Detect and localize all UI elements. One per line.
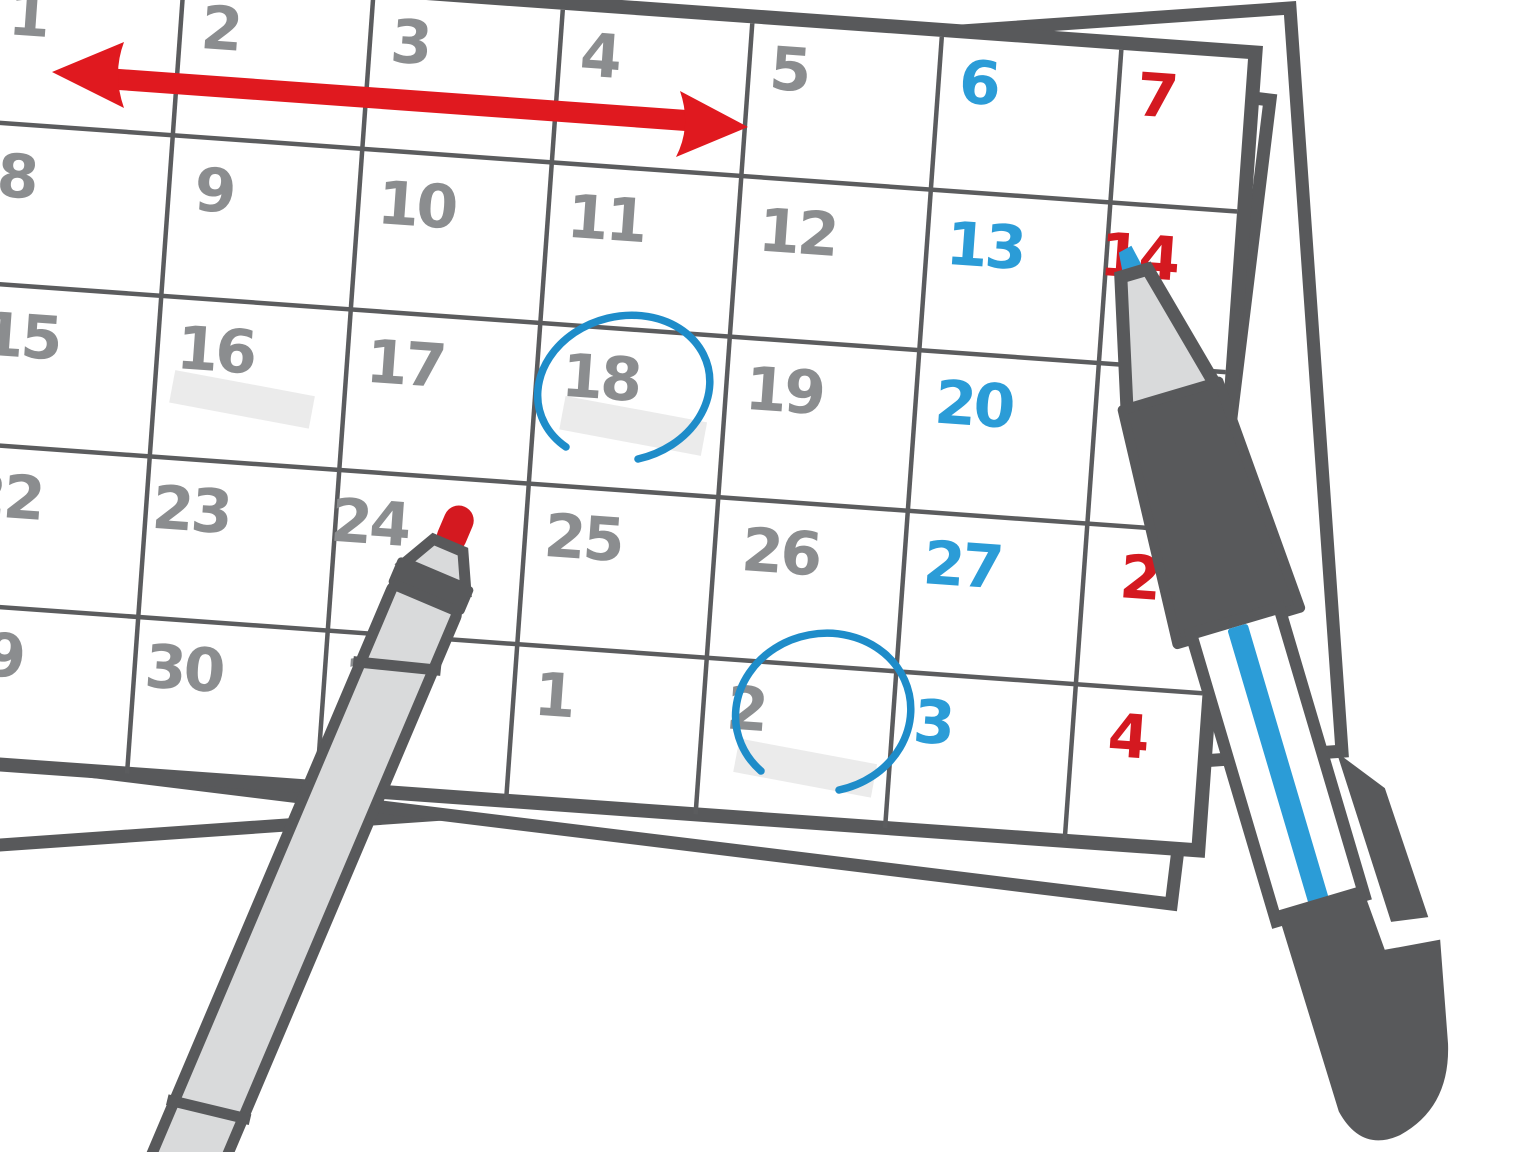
date-cell-4-next: 4 [1105,701,1149,774]
date-cell-4: 4 [578,20,622,93]
date-cell-5: 5 [767,34,811,107]
date-cell-3-next: 3 [911,687,955,760]
illustration-svg: 1 2 3 4 5 6 7 8 9 10 11 12 13 14 15 16 1… [0,0,1536,1152]
date-cell-10: 10 [375,168,458,243]
date-cell-13: 13 [944,209,1026,284]
date-cell-8: 8 [0,141,38,214]
date-cell-6: 6 [957,47,1001,120]
date-cell-2: 2 [199,0,243,66]
date-cell-11: 11 [565,182,647,257]
date-cell-20: 20 [932,367,1015,442]
date-cell-23: 23 [150,473,232,548]
date-cell-17: 17 [364,327,446,402]
date-cell-16: 16 [174,313,257,388]
date-cell-22: 22 [0,459,45,534]
date-cell-15: 15 [0,299,62,374]
date-cell-18: 18 [559,341,642,416]
date-cell-1: 1 [6,0,50,52]
date-cell-3: 3 [388,7,432,80]
calendar-sheet-front: 1 2 3 4 5 6 7 8 9 10 11 12 13 14 15 16 1… [0,0,1255,850]
calendar-illustration: 1 2 3 4 5 6 7 8 9 10 11 12 13 14 15 16 1… [0,0,1536,1152]
date-cell-9: 9 [192,155,236,228]
date-cell-1-next: 1 [532,660,576,733]
date-cell-19: 19 [743,354,825,429]
date-cell-12: 12 [756,195,838,270]
date-cell-30: 30 [142,632,225,707]
date-cell-24: 24 [328,486,411,561]
ballpoint-pen-end-cap [1277,869,1490,1151]
date-cell-25: 25 [542,501,624,576]
date-cell-27: 27 [921,528,1003,603]
date-cell-26: 26 [739,515,822,590]
date-cell-7: 7 [1134,60,1178,133]
